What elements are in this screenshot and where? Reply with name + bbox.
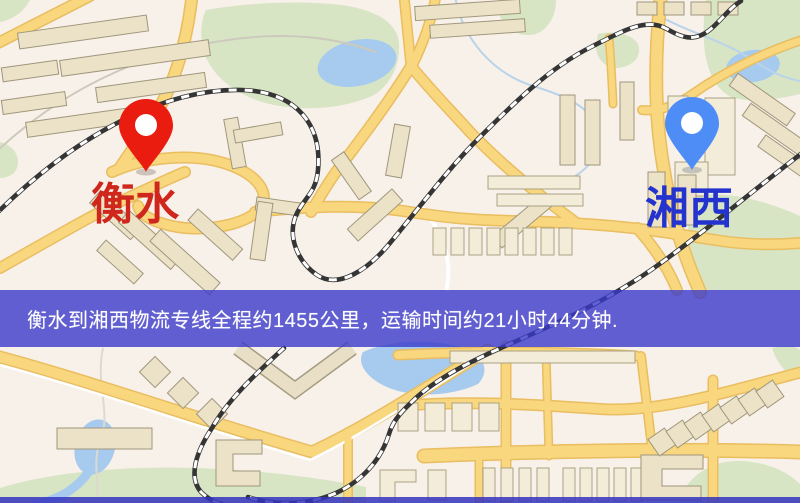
map-artwork: 衡水 湘西 — [0, 0, 800, 503]
destination-label: 湘西 — [645, 184, 733, 233]
map-canvas[interactable]: 衡水 湘西 衡水到湘西物流专线全程约1455公里，运输时间约21小时44分钟. — [0, 0, 800, 503]
route-info-banner: 衡水到湘西物流专线全程约1455公里，运输时间约21小时44分钟. — [0, 290, 800, 347]
bottom-banner-edge — [0, 497, 800, 503]
origin-label: 衡水 — [91, 180, 180, 229]
route-info-text: 衡水到湘西物流专线全程约1455公里，运输时间约21小时44分钟. — [27, 304, 618, 333]
